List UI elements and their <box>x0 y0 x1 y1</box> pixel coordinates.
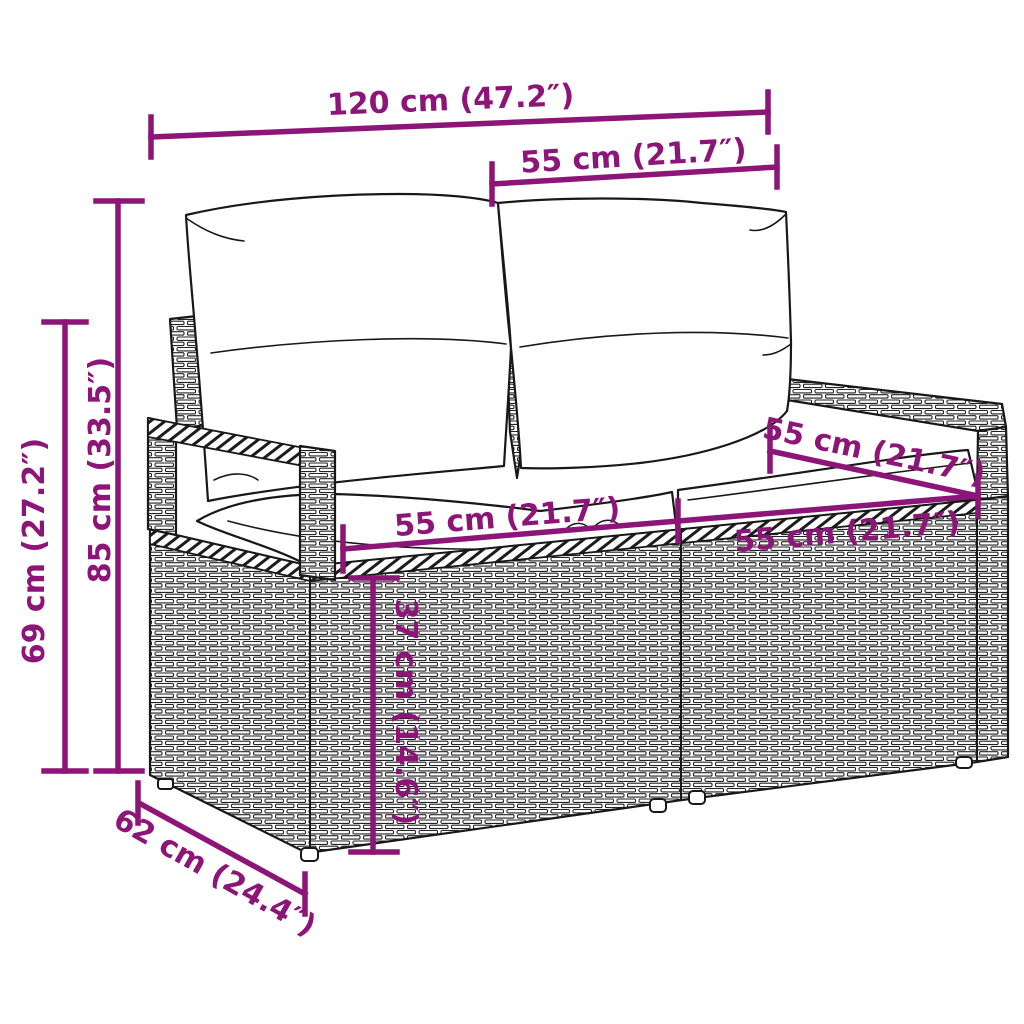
dimension-label-seat-height: 37 cm (14.6″) <box>388 599 423 826</box>
dimension-label-total-height: 85 cm (33.5″) <box>83 357 118 584</box>
dimension-total-height: 85 cm (33.5″) <box>83 201 142 771</box>
dimension-backrest-section-width: 55 cm (21.7″) <box>492 132 777 204</box>
dimension-label-total-width: 120 cm (47.2″) <box>326 78 575 123</box>
left-armrest-inner-post <box>300 446 335 580</box>
dimension-label-armrest-height: 69 cm (27.2″) <box>17 438 52 665</box>
sofa-foot <box>956 757 972 768</box>
sofa-foot <box>301 848 318 861</box>
product-dimension-diagram: 120 cm (47.2″) 55 cm (21.7″) 85 cm (33.5… <box>0 0 1024 1024</box>
dimension-armrest-height: 69 cm (27.2″) <box>17 322 86 771</box>
sofa-foot <box>158 779 173 789</box>
sofa-foot <box>650 799 666 812</box>
sofa-foot <box>689 791 705 804</box>
diagram-canvas: 120 cm (47.2″) 55 cm (21.7″) 85 cm (33.5… <box>0 0 1024 1024</box>
